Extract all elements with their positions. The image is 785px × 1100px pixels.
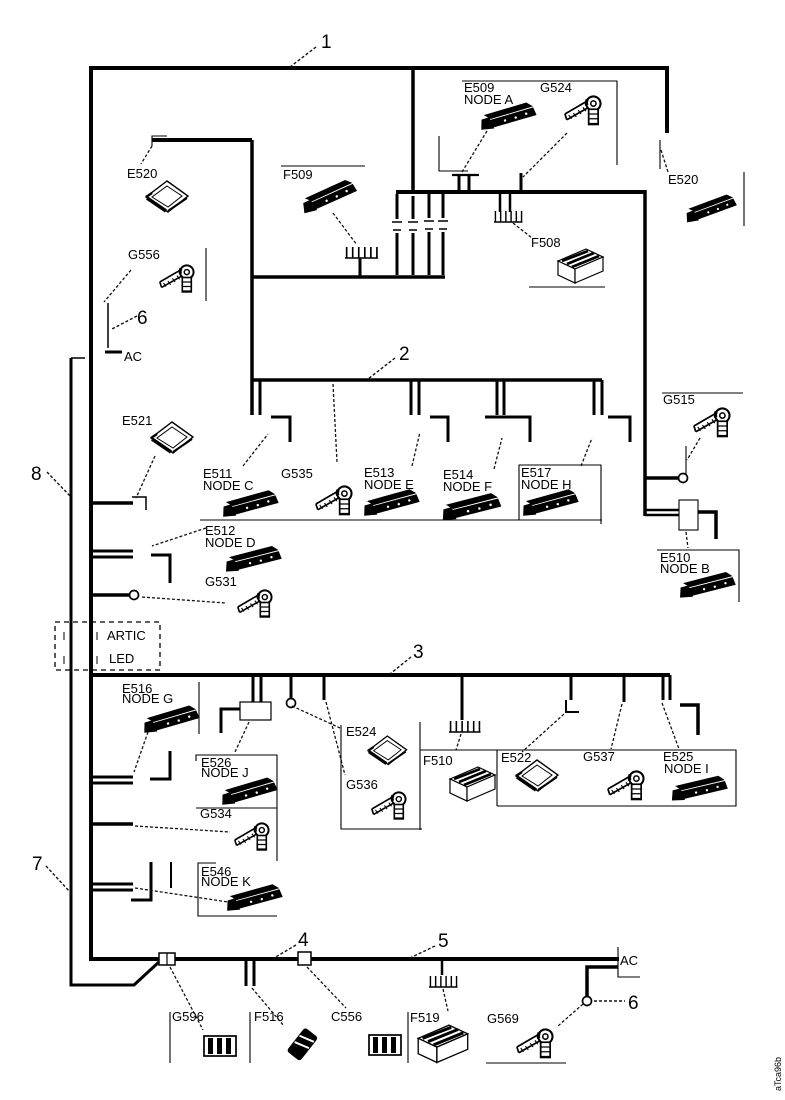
svg-text:LED: LED xyxy=(109,651,134,666)
svg-text:8: 8 xyxy=(31,464,42,485)
svg-text:E521: E521 xyxy=(122,413,152,428)
svg-text:NODE K: NODE K xyxy=(201,874,251,889)
svg-text:F519: F519 xyxy=(410,1010,440,1025)
svg-text:G531: G531 xyxy=(205,574,237,589)
svg-text:F508: F508 xyxy=(531,235,561,250)
svg-text:G537: G537 xyxy=(583,749,615,764)
svg-text:E524: E524 xyxy=(346,724,376,739)
svg-text:NODE J: NODE J xyxy=(201,765,249,780)
svg-text:NODE D: NODE D xyxy=(205,535,256,550)
svg-text:NODE C: NODE C xyxy=(203,478,254,493)
svg-text:F510: F510 xyxy=(423,753,453,768)
svg-text:G534: G534 xyxy=(200,806,232,821)
svg-text:1: 1 xyxy=(321,32,332,53)
svg-text:G536: G536 xyxy=(346,777,378,792)
svg-text:G569: G569 xyxy=(487,1011,519,1026)
svg-text:AC: AC xyxy=(124,349,142,364)
svg-text:NODE A: NODE A xyxy=(464,92,513,107)
svg-text:NODE H: NODE H xyxy=(521,477,572,492)
svg-text:2: 2 xyxy=(399,344,410,365)
svg-text:3: 3 xyxy=(413,642,424,663)
svg-text:6: 6 xyxy=(137,308,148,329)
svg-text:E520: E520 xyxy=(127,166,157,181)
svg-text:G556: G556 xyxy=(128,247,160,262)
svg-text:G535: G535 xyxy=(281,466,313,481)
svg-text:NODE B: NODE B xyxy=(660,561,710,576)
svg-text:aTca96b: aTca96b xyxy=(773,1057,783,1091)
svg-text:NODE F: NODE F xyxy=(443,479,492,494)
svg-text:NODE G: NODE G xyxy=(122,691,173,706)
svg-text:7: 7 xyxy=(32,854,43,875)
svg-text:NODE E: NODE E xyxy=(364,477,414,492)
svg-text:G596: G596 xyxy=(172,1009,204,1024)
svg-text:G524: G524 xyxy=(540,80,572,95)
svg-text:5: 5 xyxy=(438,931,449,952)
svg-text:4: 4 xyxy=(298,930,309,951)
svg-text:C556: C556 xyxy=(331,1009,362,1024)
svg-text:AC: AC xyxy=(620,953,638,968)
svg-text:F509: F509 xyxy=(283,167,313,182)
svg-text:6: 6 xyxy=(628,993,639,1014)
svg-text:ARTIC: ARTIC xyxy=(107,628,146,643)
svg-text:F516: F516 xyxy=(254,1009,284,1024)
svg-text:E522: E522 xyxy=(501,750,531,765)
svg-text:G515: G515 xyxy=(663,392,695,407)
svg-text:NODE I: NODE I xyxy=(664,761,709,776)
svg-text:E520: E520 xyxy=(668,172,698,187)
